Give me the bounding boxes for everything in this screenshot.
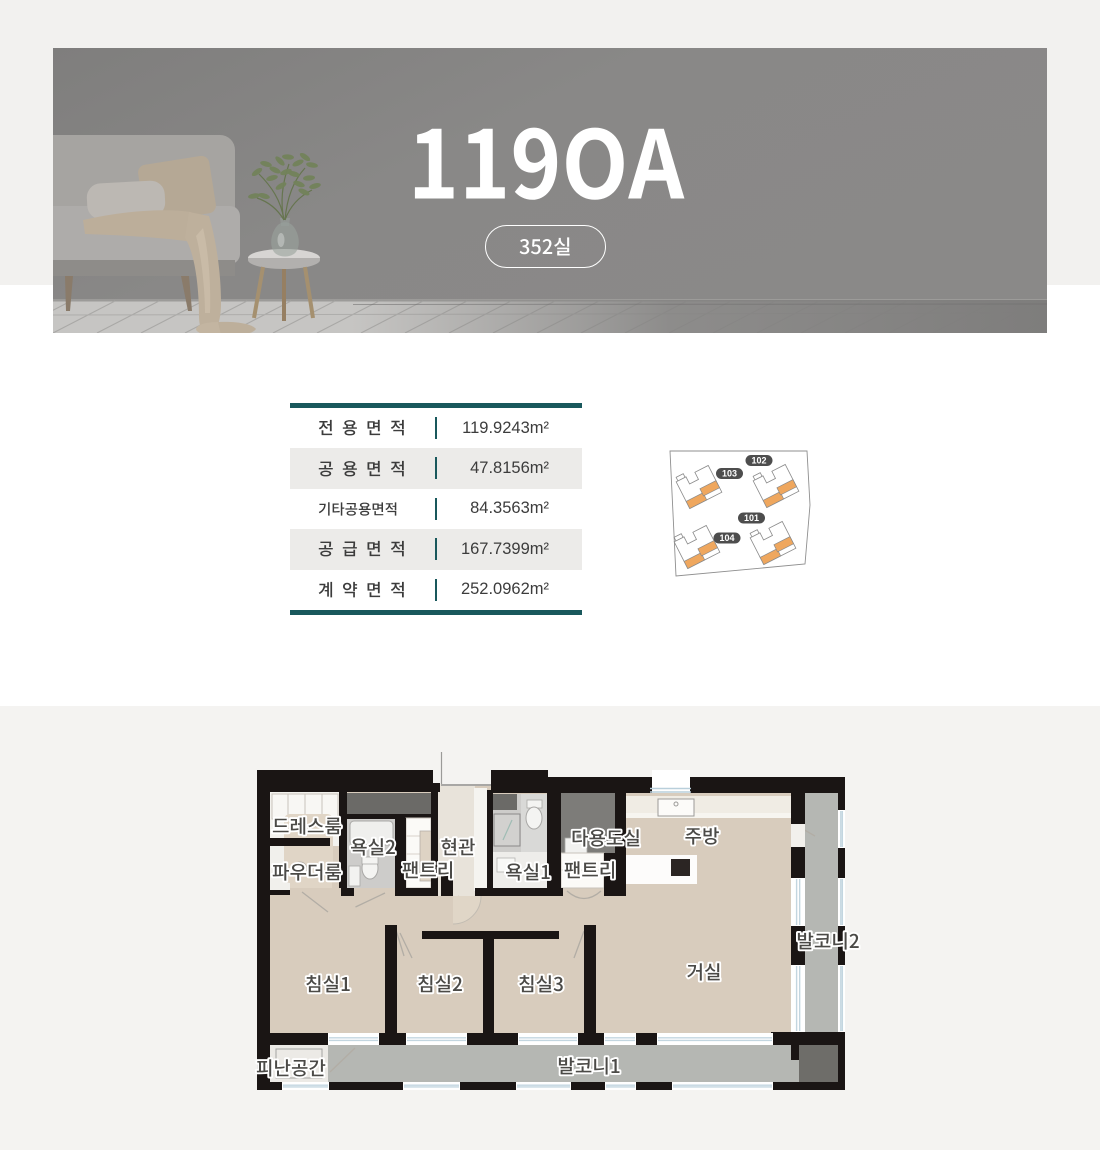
svg-text:102: 102 — [751, 456, 766, 466]
svg-text:101: 101 — [744, 513, 759, 523]
svg-text:103: 103 — [722, 469, 737, 479]
svg-text:104: 104 — [719, 533, 734, 543]
